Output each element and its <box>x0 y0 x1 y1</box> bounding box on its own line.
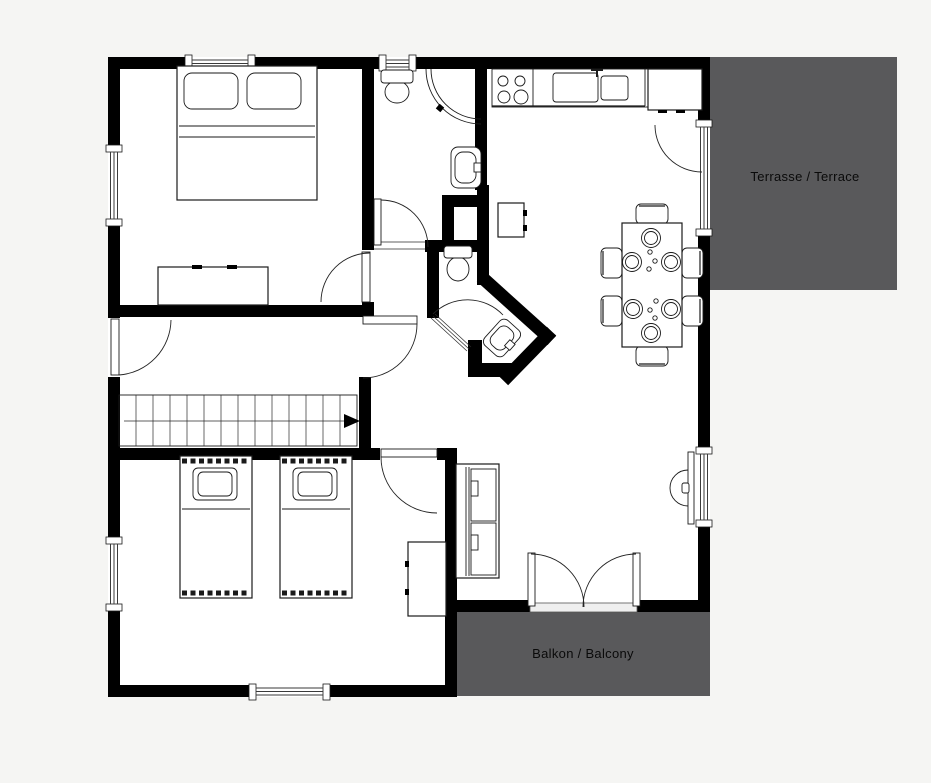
wardrobe <box>405 542 446 616</box>
sofa <box>456 464 499 578</box>
washbasin <box>451 147 481 188</box>
terrace-label: Terrasse / Terrace <box>750 169 859 184</box>
fridge <box>648 69 702 113</box>
floorplan-page: Terrasse / Terrace Balkon / Balcony <box>0 0 931 783</box>
dresser <box>158 265 268 305</box>
floorplan-drawing: Terrasse / Terrace Balkon / Balcony <box>0 0 931 783</box>
single-bed-2 <box>280 456 352 598</box>
double-bed <box>177 66 317 200</box>
duct-niche <box>454 207 477 240</box>
single-bed-1 <box>180 456 252 598</box>
base-cabinet <box>498 203 527 237</box>
balcony-label: Balkon / Balcony <box>532 646 634 661</box>
